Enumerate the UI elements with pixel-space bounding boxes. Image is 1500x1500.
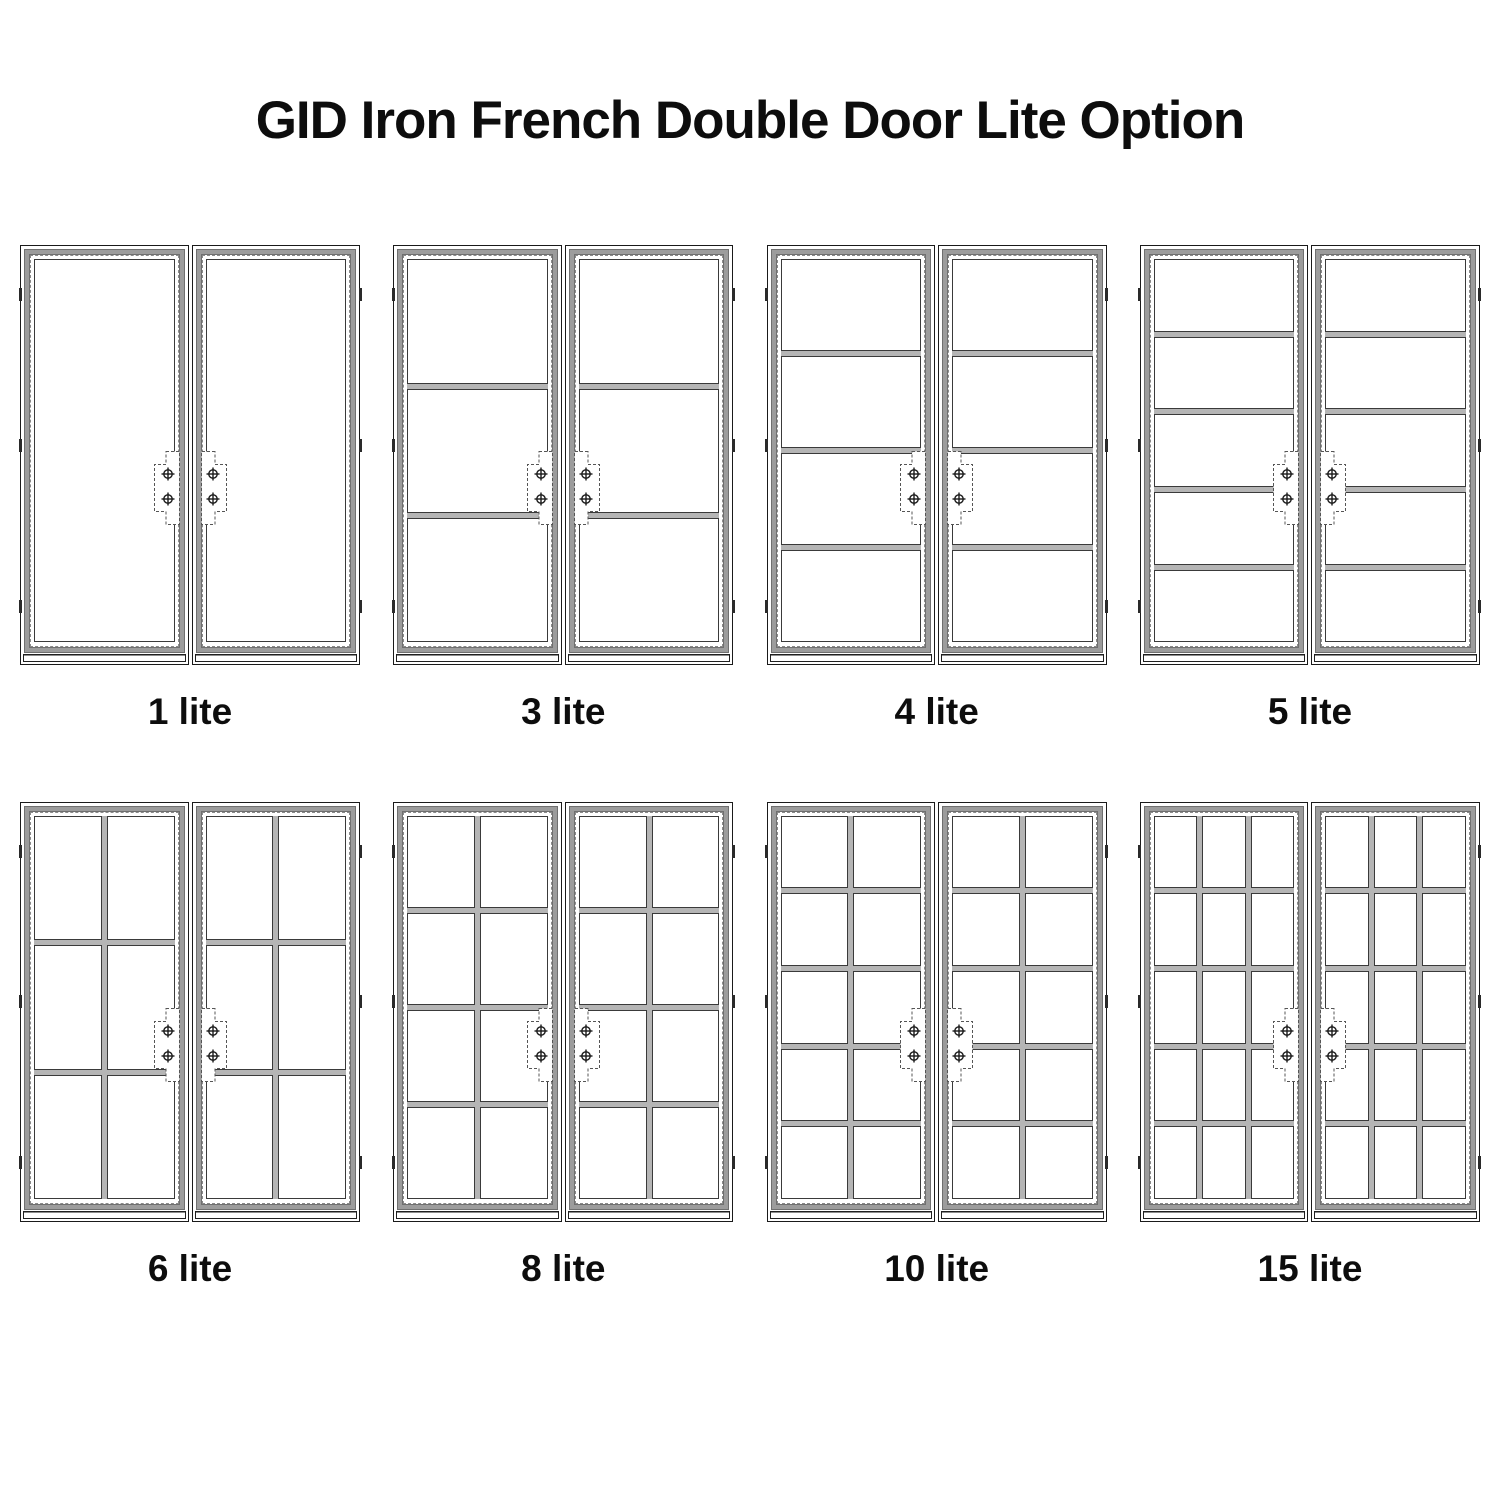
glass-pane [652, 816, 720, 908]
hinge-mark [359, 1156, 362, 1169]
glass-pane [1422, 971, 1466, 1044]
glass-grid [206, 816, 347, 1199]
glass-pane [1154, 1126, 1198, 1199]
door-leaf-left [767, 245, 936, 665]
glass-pane [1422, 893, 1466, 966]
hinge-mark [359, 995, 362, 1008]
glass-pane [952, 893, 1020, 966]
glass-pane [1251, 1126, 1295, 1199]
glass-pane [1374, 1049, 1418, 1122]
glass-pane [781, 816, 849, 889]
hinge-mark [1478, 600, 1481, 613]
door-leaf-right [1311, 245, 1480, 665]
hinge-mark [1478, 845, 1481, 858]
door-sill [396, 654, 559, 662]
hinge-mark [732, 995, 735, 1008]
glass-pane [853, 1126, 921, 1199]
hinge-mark [732, 845, 735, 858]
door-option-10-lite: 10 lite [767, 802, 1107, 1291]
glass-pane [1325, 259, 1466, 332]
hinge-mark [732, 288, 735, 301]
hinge-mark [19, 439, 22, 452]
hinge-mark [359, 288, 362, 301]
glass-pane [107, 816, 175, 940]
hinge-mark [765, 845, 768, 858]
glass-pane [206, 1075, 274, 1199]
door-sill [568, 1211, 731, 1219]
glass-pane [1325, 337, 1466, 410]
door-sill [1143, 1211, 1306, 1219]
door-option-4-lite: 4 lite [767, 245, 1107, 734]
glass-pane [407, 1107, 475, 1199]
door-option-8-lite: 8 lite [393, 802, 733, 1291]
hinge-mark [732, 600, 735, 613]
door-option-15-lite: 15 lite [1140, 802, 1480, 1291]
handle-plate [154, 451, 180, 525]
door-leaf-left [1140, 802, 1309, 1222]
glass-pane [1422, 1126, 1466, 1199]
door-leaf-left [20, 802, 189, 1222]
door-leaf-left [767, 802, 936, 1222]
glass-pane [1202, 971, 1246, 1044]
door-label: 15 lite [1140, 1248, 1480, 1291]
glass-pane [952, 453, 1093, 545]
glass-pane [1325, 1126, 1369, 1199]
glass-pane [407, 816, 475, 908]
glass-pane [652, 1107, 720, 1199]
glass-pane [278, 945, 346, 1069]
glass-grid [952, 816, 1093, 1199]
hinge-mark [19, 845, 22, 858]
glass-grid [1325, 816, 1466, 1199]
glass-pane [1154, 1049, 1198, 1122]
handle-plate [1273, 451, 1299, 525]
glass-pane [781, 1126, 849, 1199]
door-sill [396, 1211, 559, 1219]
hinge-mark [765, 995, 768, 1008]
hinge-mark [1105, 845, 1108, 858]
door-label: 4 lite [767, 691, 1107, 734]
hinge-mark [19, 1156, 22, 1169]
door-leaf-right [565, 245, 734, 665]
door-option-1-lite: 1 lite [20, 245, 360, 734]
door-label: 6 lite [20, 1248, 360, 1291]
glass-grid [952, 259, 1093, 642]
hinge-mark [392, 845, 395, 858]
hinge-mark [732, 1156, 735, 1169]
glass-pane [853, 893, 921, 966]
glass-pane [1325, 570, 1466, 643]
glass-pane [1202, 816, 1246, 889]
glass-pane [480, 1107, 548, 1199]
glass-pane [579, 259, 720, 383]
handle-plate [900, 1008, 926, 1082]
hinge-mark [732, 439, 735, 452]
door-leaf-right [938, 802, 1107, 1222]
glass-pane [407, 913, 475, 1005]
handle-plate [1273, 1008, 1299, 1082]
handle-plate [947, 451, 973, 525]
hinge-mark [392, 1156, 395, 1169]
glass-pane [579, 816, 647, 908]
door-option-6-lite: 6 lite [20, 802, 360, 1291]
handle-plate [1320, 451, 1346, 525]
handle-plate [900, 451, 926, 525]
double-door-drawing-3-lite [393, 245, 733, 665]
glass-grid [579, 259, 720, 642]
door-sill [1314, 1211, 1477, 1219]
hinge-mark [1478, 288, 1481, 301]
glass-pane [1154, 971, 1198, 1044]
glass-pane [1154, 570, 1295, 643]
hinge-mark [1138, 288, 1141, 301]
hinge-mark [1105, 600, 1108, 613]
door-leaf-right [192, 802, 361, 1222]
door-leaf-right [1311, 802, 1480, 1222]
glass-pane [952, 550, 1093, 642]
hinge-mark [359, 439, 362, 452]
door-label: 8 lite [393, 1248, 733, 1291]
door-label: 3 lite [393, 691, 733, 734]
glass-pane [1374, 971, 1418, 1044]
glass-pane [952, 259, 1093, 351]
hinge-mark [359, 845, 362, 858]
door-sill [941, 654, 1104, 662]
glass-pane [1154, 259, 1295, 332]
glass-pane [1422, 1049, 1466, 1122]
handle-plate [154, 1008, 180, 1082]
glass-pane [1025, 971, 1093, 1044]
double-door-drawing-8-lite [393, 802, 733, 1222]
glass-pane [579, 1107, 647, 1199]
glass-pane [1202, 1049, 1246, 1122]
handle-plate [527, 1008, 553, 1082]
hinge-mark [19, 600, 22, 613]
glass-pane [480, 816, 548, 908]
glass-grid [579, 816, 720, 1199]
door-sill [23, 654, 186, 662]
door-sill [195, 654, 358, 662]
glass-pane [1202, 1126, 1246, 1199]
glass-pane [1374, 893, 1418, 966]
glass-pane [206, 816, 274, 940]
glass-pane [579, 389, 720, 513]
glass-pane [952, 1126, 1020, 1199]
handle-plate [947, 1008, 973, 1082]
hinge-mark [19, 995, 22, 1008]
door-option-3-lite: 3 lite [393, 245, 733, 734]
hinge-mark [765, 1156, 768, 1169]
door-sill [568, 654, 731, 662]
glass-pane [1374, 816, 1418, 889]
hinge-mark [1478, 439, 1481, 452]
glass-pane [278, 1075, 346, 1199]
hinge-mark [359, 600, 362, 613]
glass-pane [781, 971, 849, 1044]
glass-pane [1325, 816, 1369, 889]
glass-grid [1325, 259, 1466, 642]
glass-pane [952, 816, 1020, 889]
handle-plate [1320, 1008, 1346, 1082]
door-options-grid: 1 lite3 lite4 lite5 lite6 lite8 lite10 l… [20, 245, 1480, 1290]
glass-pane [1154, 816, 1198, 889]
door-sill [1314, 654, 1477, 662]
glass-pane [1422, 816, 1466, 889]
glass-pane [1251, 893, 1295, 966]
door-leaf-right [192, 245, 361, 665]
hinge-mark [19, 288, 22, 301]
door-leaf-right [565, 802, 734, 1222]
hinge-mark [1105, 439, 1108, 452]
glass-pane [480, 913, 548, 1005]
door-sill [770, 654, 933, 662]
glass-pane [579, 913, 647, 1005]
glass-pane [781, 259, 922, 351]
glass-pane [407, 259, 548, 383]
glass-pane [278, 816, 346, 940]
door-sill [23, 1211, 186, 1219]
glass-pane [781, 550, 922, 642]
door-leaf-right [938, 245, 1107, 665]
glass-pane [1025, 1049, 1093, 1122]
glass-pane [206, 259, 347, 642]
hinge-mark [392, 995, 395, 1008]
door-leaf-left [20, 245, 189, 665]
glass-pane [407, 1010, 475, 1102]
door-sill [1143, 654, 1306, 662]
glass-pane [952, 356, 1093, 448]
glass-pane [652, 1010, 720, 1102]
door-option-5-lite: 5 lite [1140, 245, 1480, 734]
door-leaf-left [1140, 245, 1309, 665]
door-label: 5 lite [1140, 691, 1480, 734]
glass-pane [1025, 893, 1093, 966]
hinge-mark [765, 600, 768, 613]
glass-pane [34, 816, 102, 940]
handle-plate [574, 1008, 600, 1082]
hinge-mark [1138, 600, 1141, 613]
glass-pane [652, 913, 720, 1005]
glass-pane [1325, 414, 1466, 487]
hinge-mark [392, 439, 395, 452]
glass-pane [1154, 893, 1198, 966]
glass-pane [1325, 893, 1369, 966]
door-sill [770, 1211, 933, 1219]
glass-pane [407, 518, 548, 642]
glass-pane [107, 1075, 175, 1199]
hinge-mark [392, 600, 395, 613]
glass-pane [781, 356, 922, 448]
glass-pane [1025, 816, 1093, 889]
hinge-mark [1138, 439, 1141, 452]
door-sill [941, 1211, 1104, 1219]
glass-pane [1025, 1126, 1093, 1199]
door-leaf-left [393, 802, 562, 1222]
hinge-mark [1138, 845, 1141, 858]
hinge-mark [765, 439, 768, 452]
glass-pane [1374, 1126, 1418, 1199]
hinge-mark [1105, 995, 1108, 1008]
glass-grid [206, 259, 347, 642]
double-door-drawing-6-lite [20, 802, 360, 1222]
glass-pane [34, 1075, 102, 1199]
glass-pane [781, 1049, 849, 1122]
door-leaf-left [393, 245, 562, 665]
glass-pane [34, 945, 102, 1069]
hinge-mark [765, 288, 768, 301]
double-door-drawing-5-lite [1140, 245, 1480, 665]
double-door-drawing-4-lite [767, 245, 1107, 665]
door-sill [195, 1211, 358, 1219]
glass-pane [579, 518, 720, 642]
glass-pane [1202, 893, 1246, 966]
handle-plate [574, 451, 600, 525]
hinge-mark [1478, 1156, 1481, 1169]
handle-plate [201, 451, 227, 525]
hinge-mark [1138, 1156, 1141, 1169]
hinge-mark [1138, 995, 1141, 1008]
glass-pane [1325, 492, 1466, 565]
glass-pane [781, 893, 849, 966]
hinge-mark [1105, 288, 1108, 301]
door-label: 10 lite [767, 1248, 1107, 1291]
glass-pane [1251, 816, 1295, 889]
door-label: 1 lite [20, 691, 360, 734]
glass-pane [1154, 337, 1295, 410]
hinge-mark [1478, 995, 1481, 1008]
hinge-mark [1105, 1156, 1108, 1169]
double-door-drawing-10-lite [767, 802, 1107, 1222]
handle-plate [527, 451, 553, 525]
handle-plate [201, 1008, 227, 1082]
hinge-mark [392, 288, 395, 301]
page-title: GID Iron French Double Door Lite Option [0, 92, 1500, 150]
double-door-drawing-1-lite [20, 245, 360, 665]
double-door-drawing-15-lite [1140, 802, 1480, 1222]
glass-pane [853, 816, 921, 889]
